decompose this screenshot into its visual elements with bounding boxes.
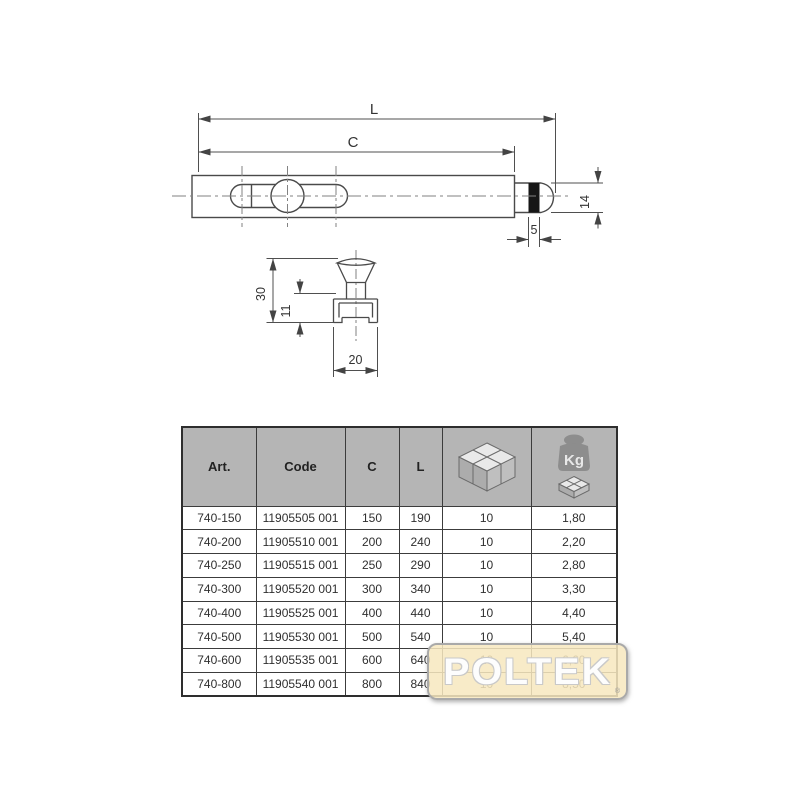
table-row: 740-200 11905510 001 200 240 10 2,20 xyxy=(182,530,617,554)
cell-c: 250 xyxy=(345,554,399,578)
registered-mark: ® xyxy=(615,688,620,695)
table-row: 740-400 11905525 001 400 440 10 4,40 xyxy=(182,601,617,625)
cell-code: 11905510 001 xyxy=(256,530,345,554)
cell-c: 800 xyxy=(345,672,399,696)
dim-label-11: 11 xyxy=(279,304,293,317)
cell-art: 740-800 xyxy=(182,672,256,696)
header-packaging xyxy=(442,427,531,506)
svg-text:Kg: Kg xyxy=(564,452,584,469)
cell-kg: 2,20 xyxy=(531,530,617,554)
header-art: Art. xyxy=(182,427,256,506)
cell-kg: 1,80 xyxy=(531,506,617,530)
cell-kg: 3,30 xyxy=(531,577,617,601)
cell-l: 340 xyxy=(399,577,442,601)
poltek-watermark-logo: POLTEK ® xyxy=(427,643,628,700)
cell-c: 200 xyxy=(345,530,399,554)
cell-art: 740-400 xyxy=(182,601,256,625)
cell-l: 290 xyxy=(399,554,442,578)
cell-qty: 10 xyxy=(442,554,531,578)
cell-code: 11905535 001 xyxy=(256,649,345,673)
dimension-lines xyxy=(199,113,604,377)
cell-qty: 10 xyxy=(442,506,531,530)
cell-art: 740-150 xyxy=(182,506,256,530)
dim-label-L: L xyxy=(370,101,378,118)
table-row: 740-300 11905520 001 300 340 10 3,30 xyxy=(182,577,617,601)
header-weight: Kg xyxy=(531,427,617,506)
bolt-black-band xyxy=(529,183,540,213)
weight-kg-icon: Kg xyxy=(544,434,604,500)
datasheet-page: L C 14 5 30 11 20 Art. Code C L xyxy=(0,0,800,800)
dim-label-20: 20 xyxy=(349,353,363,367)
header-l: L xyxy=(399,427,442,506)
cell-code: 11905530 001 xyxy=(256,625,345,649)
cell-art: 740-500 xyxy=(182,625,256,649)
cell-qty: 10 xyxy=(442,530,531,554)
header-c: C xyxy=(345,427,399,506)
cell-l: 190 xyxy=(399,506,442,530)
cell-code: 11905520 001 xyxy=(256,577,345,601)
cell-art: 740-250 xyxy=(182,554,256,578)
cell-l: 440 xyxy=(399,601,442,625)
carton-box-icon xyxy=(451,441,523,493)
header-code: Code xyxy=(256,427,345,506)
table-row: 740-250 11905515 001 250 290 10 2,80 xyxy=(182,554,617,578)
watermark-text: POLTEK xyxy=(443,653,612,690)
cell-art: 740-300 xyxy=(182,577,256,601)
table-row: 740-150 11905505 001 150 190 10 1,80 xyxy=(182,506,617,530)
dimension-labels: L C 14 5 30 11 20 xyxy=(254,101,592,367)
cell-art: 740-200 xyxy=(182,530,256,554)
cell-l: 240 xyxy=(399,530,442,554)
table-header-row: Art. Code C L xyxy=(182,427,617,506)
dim-label-5: 5 xyxy=(531,223,538,237)
cell-kg: 2,80 xyxy=(531,554,617,578)
dim-label-14: 14 xyxy=(578,195,592,209)
cell-code: 11905540 001 xyxy=(256,672,345,696)
cell-art: 740-600 xyxy=(182,649,256,673)
carton-box-icon-small xyxy=(559,476,589,498)
weight-icon: Kg xyxy=(558,434,590,471)
cell-c: 400 xyxy=(345,601,399,625)
cell-c: 300 xyxy=(345,577,399,601)
dim-label-30: 30 xyxy=(254,287,268,301)
cell-c: 600 xyxy=(345,649,399,673)
cell-kg: 4,40 xyxy=(531,601,617,625)
cell-code: 11905525 001 xyxy=(256,601,345,625)
cell-code: 11905515 001 xyxy=(256,554,345,578)
cell-c: 150 xyxy=(345,506,399,530)
cell-c: 500 xyxy=(345,625,399,649)
dim-label-C: C xyxy=(348,134,359,151)
cell-qty: 10 xyxy=(442,601,531,625)
cell-code: 11905505 001 xyxy=(256,506,345,530)
cell-qty: 10 xyxy=(442,577,531,601)
